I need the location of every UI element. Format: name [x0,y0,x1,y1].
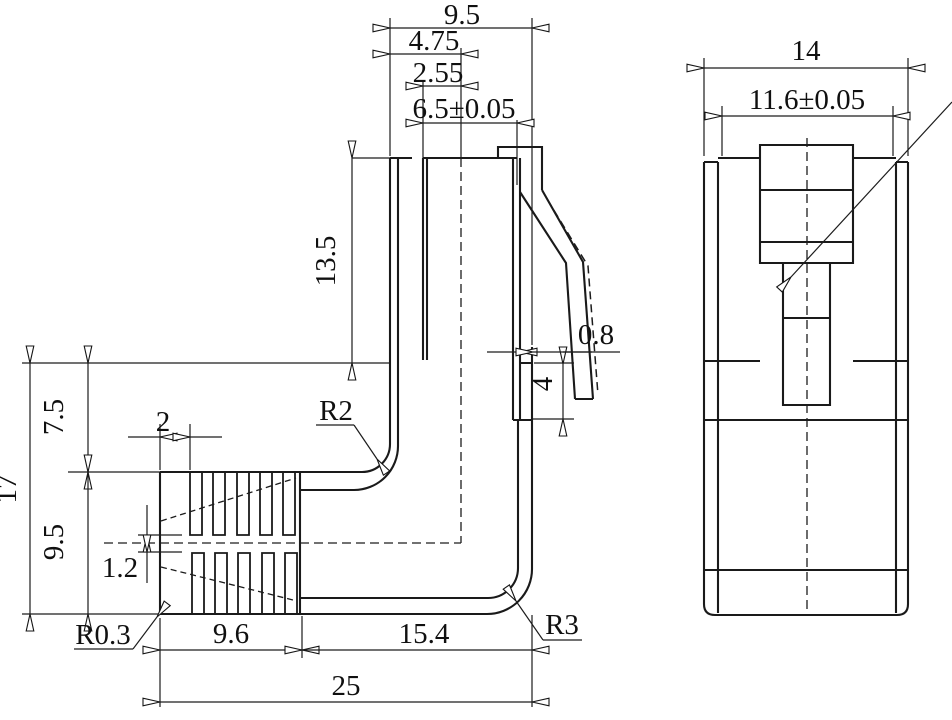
dim-overall-length: 25 [332,670,361,702]
label-r-inner: R2 [319,395,353,427]
contact-channel [423,158,427,360]
rib-seam-hidden-lines [161,478,297,601]
front-outline [160,147,542,614]
label-r-outer: R3 [545,609,579,641]
dim-half-width: 4.75 [409,25,460,57]
dim-band-width: 1.2 [102,552,138,584]
r3-leader [516,601,543,640]
side-view: 14 11.6±0.05 [704,35,952,615]
dim-upper-height: 7.5 [38,399,70,435]
dim-window-width: 11.6±0.05 [749,84,865,116]
dim-latch-engage: 4 [527,376,559,391]
dim-boot-height: 9.5 [38,524,70,560]
dim-contact-offset: 2.55 [413,57,464,89]
dim-contact-window: 6.5±0.05 [413,93,516,125]
dim-plug-height: 13.5 [310,236,342,287]
r0p3-leader [133,617,157,649]
side-outline [704,145,908,615]
dim-latch-gap: 0.8 [578,319,614,351]
dim-overall-height: 17 [0,475,23,504]
dim-rib-offset: 2 [156,406,171,438]
engineering-drawing: 9.5 4.75 2.55 6.5±0.05 13.5 17 7.5 9.5 2… [0,0,952,720]
bottom-inner [300,421,518,598]
dim-body-length: 15.4 [399,618,450,650]
r2-leader [354,425,377,459]
drawing-canvas: 9.5 4.75 2.55 6.5±0.05 13.5 17 7.5 9.5 2… [0,0,952,720]
dim-overall-width: 14 [792,35,822,67]
label-r-corner: R0.3 [75,619,131,651]
latch-anchor-block [760,145,853,263]
front-view: 9.5 4.75 2.55 6.5±0.05 13.5 17 7.5 9.5 2… [0,0,620,707]
dim-boot-length: 9.6 [213,618,249,650]
